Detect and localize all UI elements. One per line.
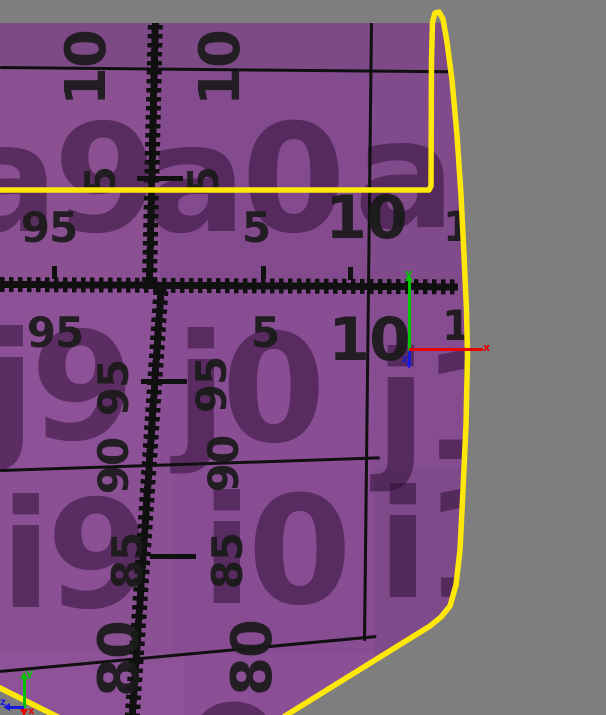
major-tick: [261, 266, 266, 279]
y-axis-label: y: [26, 668, 33, 679]
surface-cell-b1: [375, 654, 606, 715]
major-tick: [150, 554, 196, 559]
ruler-number-label: 5: [242, 207, 270, 249]
ruler-number-label: 10: [193, 30, 249, 106]
ruler-number-label: 95: [27, 312, 83, 354]
ruler-number-label: 80: [92, 621, 148, 697]
ruler-number-label: 1: [443, 206, 471, 248]
x-axis-label: x: [28, 707, 34, 715]
ruler-number-label: 80: [225, 620, 281, 696]
ruler-number-label: 90: [203, 436, 245, 492]
ruler-number-label: 5: [80, 167, 122, 195]
ruler-number-label: 95: [93, 360, 135, 416]
tick-ruler-horizontal: [0, 277, 458, 294]
ruler-number-label: 85: [207, 533, 249, 589]
y-axis-label: y: [405, 268, 412, 279]
ruler-number-label: 10: [328, 310, 410, 370]
ruler-number-label: 1: [442, 305, 470, 347]
major-tick: [52, 266, 57, 279]
ruler-number-label: 95: [21, 207, 77, 249]
ruler-number-label: 85: [107, 533, 149, 589]
map-surface: a9a0a1j9j0j1i9i0i10 95510195510110105595…: [0, 0, 606, 715]
3d-viewport[interactable]: a9a0a1j9j0j1i9i0i10 95510195510110105595…: [0, 0, 606, 715]
ruler-number-label: 90: [93, 438, 135, 494]
ruler-number-label: 5: [251, 312, 279, 354]
y-axis-line: [408, 281, 411, 351]
ruler-number-label: 5: [183, 167, 225, 195]
major-tick: [348, 267, 353, 280]
x-axis-line: [409, 348, 483, 351]
y-axis-line: [23, 678, 26, 708]
grid-cell-label: i1: [377, 471, 523, 621]
major-tick: [137, 176, 183, 181]
z-axis-label: z: [402, 355, 408, 365]
x-axis-label: x: [483, 342, 490, 353]
ruler-number-label: 10: [59, 30, 115, 106]
z-axis-label: z: [0, 698, 6, 708]
major-tick: [141, 379, 187, 384]
x-axis-arrow-icon: [20, 709, 28, 715]
ruler-number-label: 95: [191, 357, 233, 413]
ruler-number-label: 10: [325, 188, 407, 248]
